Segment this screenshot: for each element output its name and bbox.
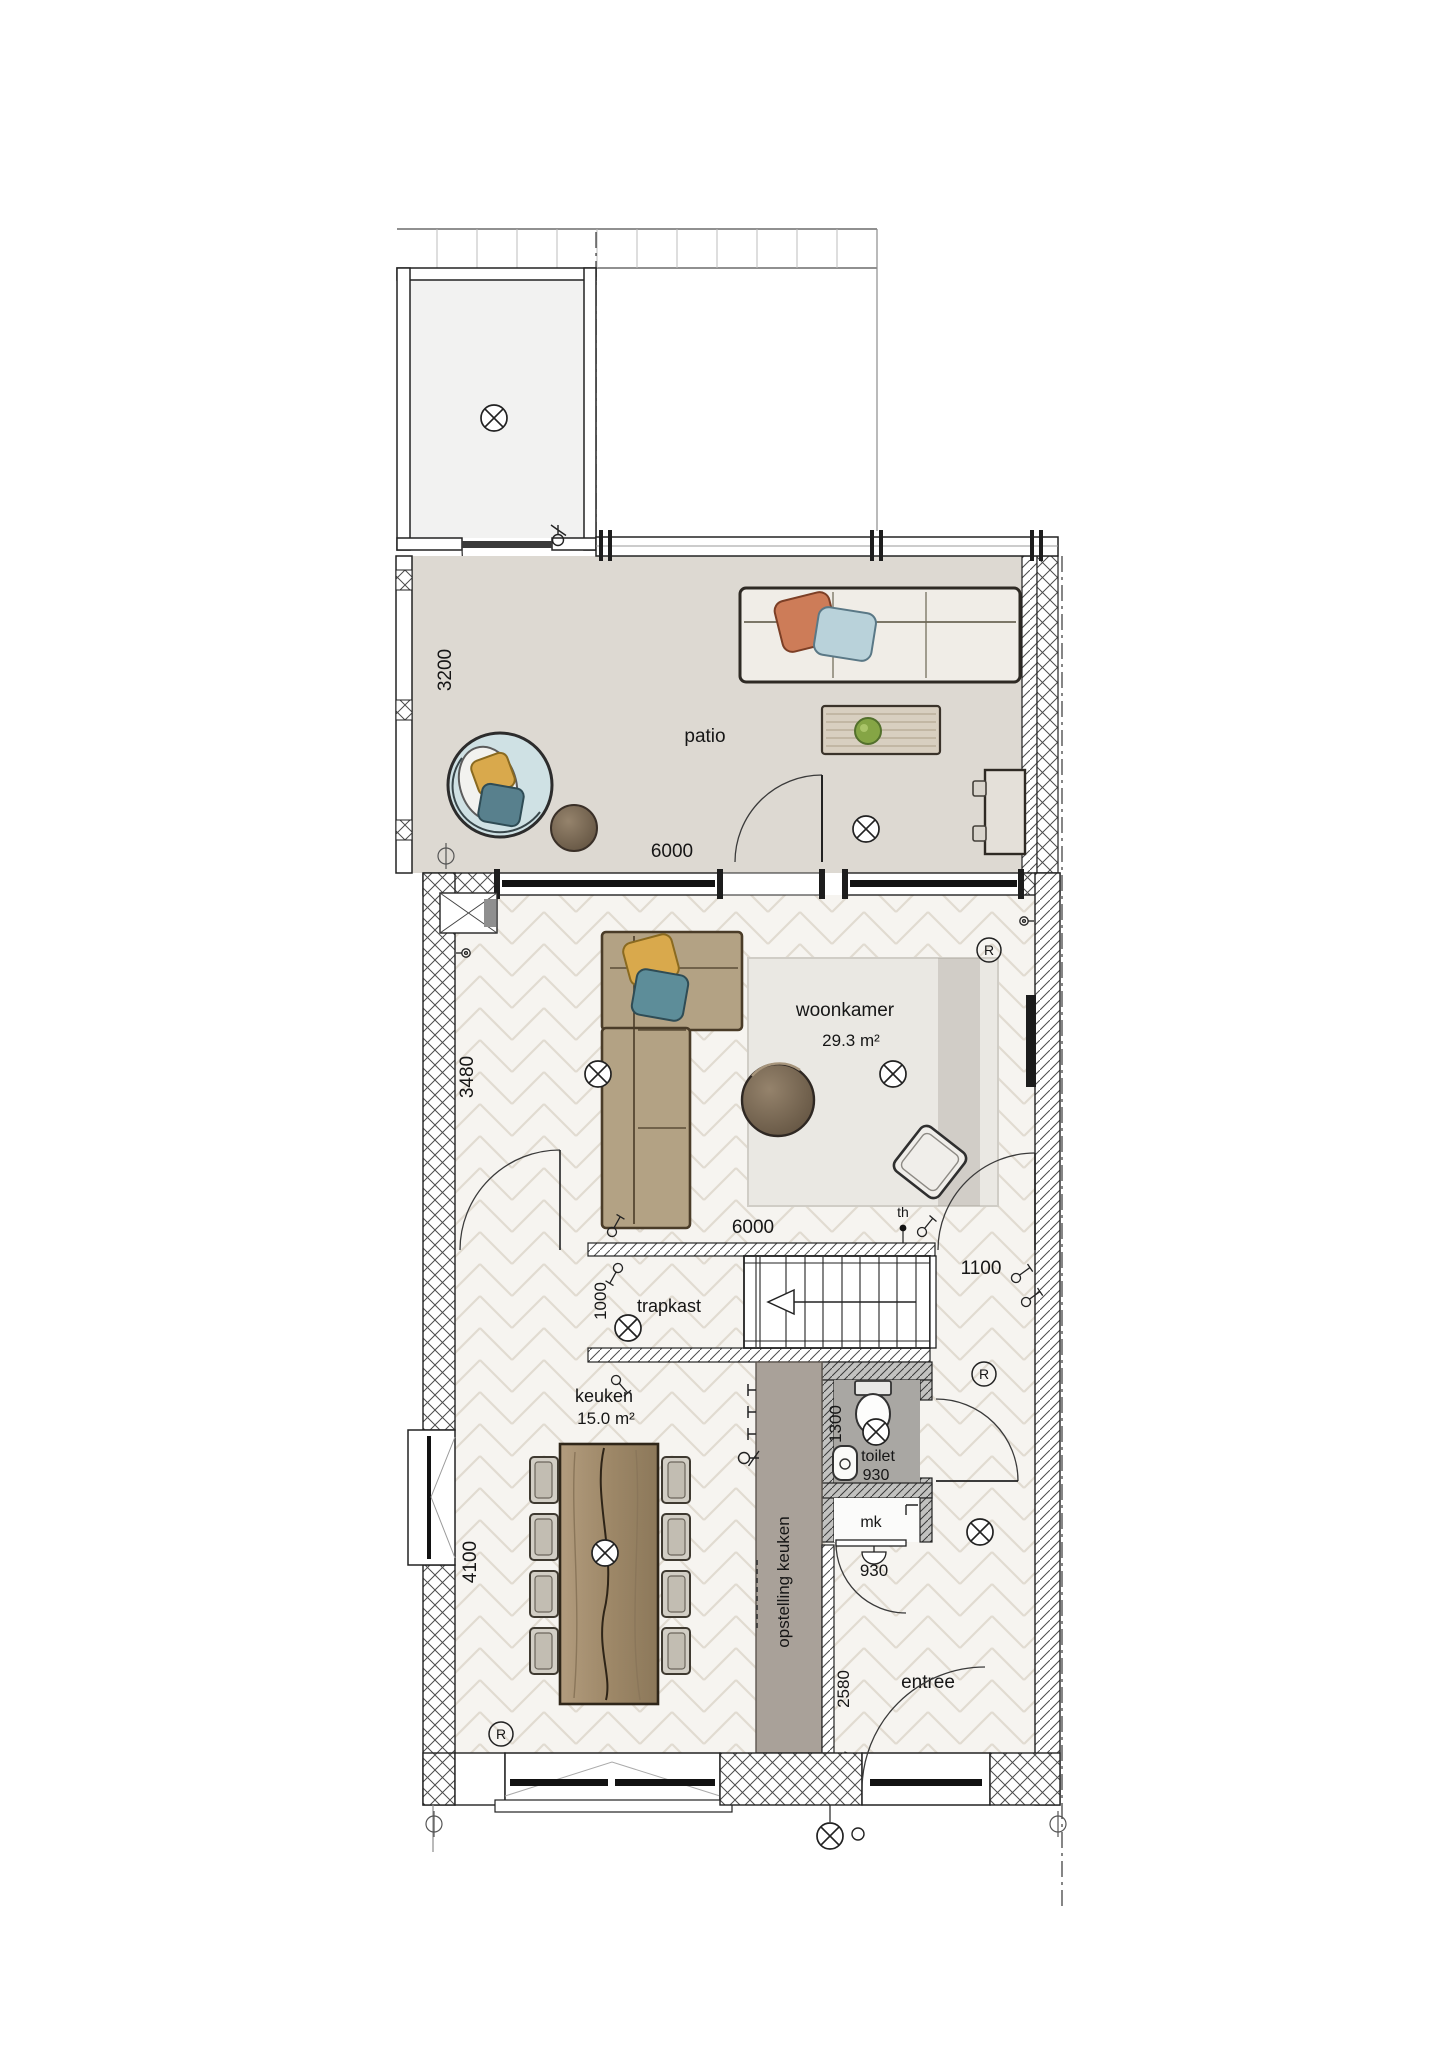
room-area-woonkamer: 29.3 m² xyxy=(822,1031,880,1050)
floorplan-drawing: patio 3200 6000 xyxy=(0,0,1448,2048)
kitchen-side-window xyxy=(408,1430,455,1565)
patio-side-table xyxy=(551,805,597,851)
plant-icon xyxy=(855,718,881,744)
ceiling-light-icon xyxy=(967,1519,993,1545)
room-label-woonkamer: woonkamer xyxy=(795,1000,895,1021)
ceiling-light-icon xyxy=(615,1315,641,1341)
front-door xyxy=(862,1753,990,1805)
ceiling-light-icon xyxy=(863,1419,889,1445)
corner-column xyxy=(440,893,497,933)
cushion-teal xyxy=(630,968,689,1022)
dim-hal-width: 1100 xyxy=(961,1258,1002,1279)
survey-point-icon xyxy=(1050,1811,1066,1837)
shed-door-leaf xyxy=(462,541,552,548)
room-area-keuken: 15.0 m² xyxy=(577,1409,635,1428)
pavement-tile-grid xyxy=(397,229,877,268)
bell-icon xyxy=(852,1828,864,1840)
label-opstelling-keuken: opstelling keuken xyxy=(774,1516,793,1647)
ceiling-light-icon xyxy=(585,1061,611,1087)
dining-table xyxy=(560,1444,658,1704)
right-party-wall xyxy=(1035,873,1060,1805)
ceiling-light-icon xyxy=(853,816,879,842)
floorplan-page: patio 3200 6000 xyxy=(0,0,1448,2048)
room-label-entree: entree xyxy=(901,1672,955,1693)
kitchen-front-window xyxy=(495,1753,732,1812)
room-label-mk: mk xyxy=(860,1514,882,1531)
dim-toilet-width: 930 xyxy=(863,1467,890,1484)
cushion-teal xyxy=(477,783,525,828)
shed-room xyxy=(397,268,596,550)
survey-point-icon xyxy=(426,1811,442,1837)
dim-entree-depth: 2580 xyxy=(834,1670,853,1708)
svg-text:th: th xyxy=(897,1204,909,1220)
room-label-toilet: toilet xyxy=(861,1448,895,1465)
dim-patio-depth: 3200 xyxy=(435,649,456,691)
hanging-chair xyxy=(448,733,552,837)
patio-coffee-table xyxy=(822,706,940,754)
cushion-blue xyxy=(813,606,878,662)
hand-basin xyxy=(833,1446,857,1480)
detector-label: R xyxy=(979,1366,989,1382)
dim-patio-width: 6000 xyxy=(651,841,693,862)
dim-woonkamer-width: 6000 xyxy=(732,1217,774,1238)
ceiling-light-icon xyxy=(592,1540,618,1566)
detector-label: R xyxy=(984,942,994,958)
patio-sofa xyxy=(740,588,1020,682)
mk-door-leaf xyxy=(836,1540,906,1546)
left-exterior-wall xyxy=(423,873,455,1805)
detector-label: R xyxy=(496,1726,506,1742)
dim-toilet-depth: 1300 xyxy=(826,1405,845,1443)
ceiling-light-icon xyxy=(880,1061,906,1087)
outdoor-light-icon xyxy=(817,1823,843,1849)
front-facade xyxy=(423,1753,1060,1812)
dim-keuken-depth: 4100 xyxy=(460,1541,481,1583)
room-label-trapkast: trapkast xyxy=(637,1296,701,1316)
tv xyxy=(1026,995,1036,1087)
dim-mk-door: 930 xyxy=(860,1561,888,1580)
ceiling-light-icon xyxy=(481,405,507,431)
room-label-patio: patio xyxy=(684,726,725,747)
rear-facade xyxy=(423,869,1060,899)
dim-woonkamer-depth: 3480 xyxy=(457,1056,478,1098)
dim-trapkast-opening: 1000 xyxy=(591,1282,610,1320)
